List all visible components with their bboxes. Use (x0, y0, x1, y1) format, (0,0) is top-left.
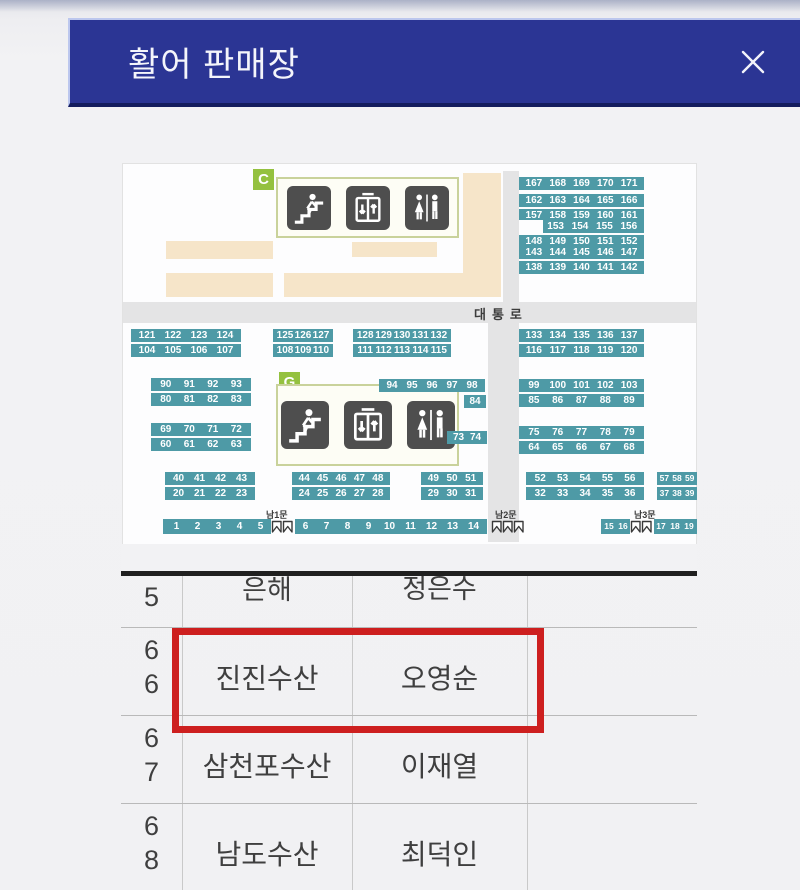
stall-row: 69707172 (151, 423, 251, 436)
stall-number: 12 (421, 522, 442, 532)
stall-number: 115 (430, 346, 448, 356)
stall-number: 107 (212, 346, 238, 356)
stall-number: 157 (522, 211, 546, 221)
stall-number: 57 (658, 474, 671, 483)
stall-number: 51 (461, 474, 480, 484)
stall-number: 85 (522, 396, 546, 406)
stall-number: 126 (294, 331, 312, 341)
stall-number: 62 (201, 440, 225, 450)
stall-no: 5 (121, 584, 182, 611)
elevator-icon (344, 401, 392, 449)
stall-number: 123 (186, 331, 212, 341)
stall-number: 38 (671, 489, 684, 498)
stall-number: 29 (424, 489, 443, 499)
stall-area-bg (463, 173, 501, 297)
stall-number: 116 (522, 346, 546, 356)
stall-number: 40 (168, 474, 189, 484)
stall-number: 84 (467, 397, 483, 407)
stall-number: 128 (356, 331, 374, 341)
stall-block: 495051293031 (421, 472, 483, 500)
stall-number: 61 (178, 440, 202, 450)
stall-number: 65 (546, 443, 570, 453)
stall-number: 121 (134, 331, 160, 341)
stall-number: 109 (294, 346, 312, 356)
stall-number: 81 (178, 395, 202, 405)
stall-row: 4445464748 (292, 472, 390, 485)
stall-row: 60616263 (151, 438, 251, 451)
stall-row: 40414243 (165, 472, 255, 485)
stall-number: 150 (570, 237, 594, 247)
stall-row: 575859 (657, 472, 697, 485)
gate-icon (271, 519, 295, 534)
stall-number: 103 (617, 381, 641, 391)
stall-number: 27 (350, 489, 368, 499)
stall-number: 98 (462, 381, 482, 391)
stall-number: 52 (529, 474, 551, 484)
stall-number: 17 (654, 522, 668, 531)
stall-number: 36 (619, 489, 641, 499)
stall-number: 165 (593, 196, 617, 206)
stall-row: 8586878889 (519, 394, 644, 407)
stall-number: 93 (225, 380, 249, 390)
stall-block: 84 (464, 395, 486, 408)
stall-block: 575859373839 (657, 472, 697, 500)
stall-number: 97 (442, 381, 462, 391)
stall-number: 48 (369, 474, 387, 484)
stall-block: 44454647482425262728 (292, 472, 390, 500)
stall-area-bg (352, 242, 437, 257)
stall-number: 56 (619, 474, 641, 484)
stall-number: 67 (593, 443, 617, 453)
stall-number: 18 (668, 522, 682, 531)
stall-row: 1234567891011121314 (163, 519, 487, 534)
stall-number: 160 (593, 211, 617, 221)
stall-row: 373839 (657, 487, 697, 500)
stall-number: 22 (210, 489, 231, 499)
section-label-c: C (253, 169, 274, 190)
stall-number: 166 (617, 196, 641, 206)
stall-area-bg (166, 241, 273, 259)
stall-number: 66 (570, 443, 594, 453)
stall-row: 99100101102103 (519, 379, 644, 392)
stall-number: 100 (546, 381, 570, 391)
stall-number: 147 (617, 248, 641, 258)
stall-number: 164 (570, 196, 594, 206)
stall-no: 8 (121, 847, 182, 874)
stall-number: 10 (379, 522, 400, 532)
stall-number: 167 (522, 179, 546, 189)
stall-number: 133 (522, 331, 546, 341)
stall-number: 148 (522, 237, 546, 247)
stall-row: 7576777879 (519, 426, 644, 439)
stall-number: 104 (134, 346, 160, 356)
stall-number: 158 (546, 211, 570, 221)
stall-number: 159 (570, 211, 594, 221)
stall-row: 143144145146147 (519, 246, 644, 259)
stall-number: 155 (592, 222, 616, 232)
stall-row: 128129130131132 (353, 329, 451, 342)
stall-number: 53 (551, 474, 573, 484)
stall-number: 120 (617, 346, 641, 356)
close-icon (738, 47, 768, 77)
stall-number: 32 (529, 489, 551, 499)
road-label: 대통로 (474, 304, 528, 323)
live-fish-market-modal: 활어 판매장 대통로 C (0, 0, 800, 890)
stall-number: 8 (337, 522, 358, 532)
stall-number: 47 (350, 474, 368, 484)
stall-row: 138139140141142 (519, 261, 644, 274)
stall-number: 46 (332, 474, 350, 484)
stall-number: 141 (593, 263, 617, 273)
stall-number: 117 (546, 346, 570, 356)
stall-row: 167168169170171 (519, 177, 644, 190)
stall-number: 118 (570, 346, 594, 356)
stall-number: 171 (617, 179, 641, 189)
stall-number: 9 (358, 522, 379, 532)
stall-number: 16 (616, 522, 630, 531)
stall-number: 89 (617, 396, 641, 406)
stall-number: 76 (546, 428, 570, 438)
stall-row: 20212223 (165, 487, 255, 500)
stall-number: 41 (189, 474, 210, 484)
stall-number: 15 (602, 522, 616, 531)
stall-number: 7 (316, 522, 337, 532)
stall-no: 7 (121, 759, 182, 786)
stall-number: 5 (250, 522, 271, 532)
stall-row: 125126127 (273, 329, 333, 342)
road-vertical-upper (503, 171, 519, 302)
stall-number: 149 (546, 237, 570, 247)
stall-number: 20 (168, 489, 189, 499)
stall-number: 11 (400, 522, 421, 532)
stall-number: 101 (570, 381, 594, 391)
stall-number: 24 (295, 489, 313, 499)
stall-number: 35 (596, 489, 618, 499)
stall-number: 45 (313, 474, 331, 484)
stall-number: 143 (522, 248, 546, 258)
stall-number: 151 (593, 237, 617, 247)
stall-row: 108109110 (273, 344, 333, 357)
stall-number: 168 (546, 179, 570, 189)
stall-number: 124 (212, 331, 238, 341)
owner-name: 이재열 (352, 745, 527, 785)
stall-number: 19 (682, 522, 696, 531)
road-horizontal (123, 302, 696, 323)
stall-row: 293031 (421, 487, 483, 500)
stall-row: 121122123124 (131, 329, 241, 342)
stairs-icon (287, 186, 331, 230)
stall-number: 145 (570, 248, 594, 258)
table-crop-cover (121, 544, 697, 571)
stall-number: 14 (463, 522, 484, 532)
elevator-icon (346, 186, 390, 230)
stall-number: 60 (154, 440, 178, 450)
stall-block: 52535455563233343536 (526, 472, 644, 500)
modal-header: 활어 판매장 (68, 18, 800, 107)
stall-number: 68 (617, 443, 641, 453)
stall-block: 6970717260616263 (151, 423, 251, 451)
stall-number: 96 (422, 381, 442, 391)
stall-number: 119 (593, 346, 617, 356)
stall-block: 7374 (447, 431, 487, 444)
stall-block: 75767778796465666768 (519, 426, 644, 454)
stall-number: 136 (593, 331, 617, 341)
stall-number: 114 (411, 346, 429, 356)
stall-block: 1234567891011121314 (163, 519, 487, 534)
stall-number: 162 (522, 196, 546, 206)
table-top-rule (121, 571, 697, 576)
stall-block: 143144145146147138139140141142 (519, 246, 644, 274)
stall-block: 121122123124104105106107 (131, 329, 241, 357)
facility-box-g (276, 384, 459, 466)
stall-number: 49 (424, 474, 443, 484)
stall-number: 25 (313, 489, 331, 499)
stall-number: 83 (225, 395, 249, 405)
stall-number: 92 (201, 380, 225, 390)
stall-number: 64 (522, 443, 546, 453)
stall-number: 108 (276, 346, 294, 356)
close-button[interactable] (736, 45, 770, 79)
stall-number: 70 (178, 425, 202, 435)
stall-no: 6 (121, 813, 182, 840)
stall-block: 9495969798 (379, 379, 485, 392)
stall-number: 44 (295, 474, 313, 484)
stall-number: 73 (450, 433, 467, 443)
gate-label-south1: 남1문 (266, 508, 288, 521)
stall-block: 991001011021038586878889 (519, 379, 644, 407)
stall-number: 135 (570, 331, 594, 341)
stall-number: 43 (231, 474, 252, 484)
stall-number: 21 (189, 489, 210, 499)
stall-block: 9091929380818283 (151, 378, 251, 406)
stall-number: 153 (543, 222, 567, 232)
stall-number: 140 (570, 263, 594, 273)
gate-icon (630, 519, 654, 534)
stall-number: 30 (443, 489, 462, 499)
stall-number: 2 (187, 522, 208, 532)
stall-number: 142 (617, 263, 641, 273)
stall-number: 94 (382, 381, 402, 391)
stall-row: 116117118119120 (519, 344, 644, 357)
stall-number: 154 (568, 222, 592, 232)
stall-number: 106 (186, 346, 212, 356)
stall-number: 82 (201, 395, 225, 405)
floor-map: 대통로 C (122, 163, 697, 545)
stall-row: 3233343536 (526, 487, 644, 500)
stall-number: 105 (160, 346, 186, 356)
stall-number: 87 (570, 396, 594, 406)
stall-row: 7374 (447, 431, 487, 444)
stall-number: 131 (411, 331, 429, 341)
stall-number: 99 (522, 381, 546, 391)
stall-number: 113 (393, 346, 411, 356)
stall-number: 139 (546, 263, 570, 273)
stairs-icon (281, 401, 329, 449)
shop-name: 남도수산 (182, 833, 352, 873)
stall-number: 161 (617, 211, 641, 221)
stall-row: 111112113114115 (353, 344, 451, 357)
stall-row: 104105106107 (131, 344, 241, 357)
stall-block: 128129130131132111112113114115 (353, 329, 451, 357)
stall-number: 59 (683, 474, 696, 483)
stall-row: 5253545556 (526, 472, 644, 485)
gate-south2-icon (491, 520, 526, 534)
stall-number: 1 (166, 522, 187, 532)
gate-label-south3: 남3문 (634, 508, 656, 521)
stall-number: 78 (593, 428, 617, 438)
stall-row: 84 (464, 395, 486, 408)
stall-number: 102 (593, 381, 617, 391)
stall-area-bg (166, 273, 273, 297)
stall-number: 111 (356, 346, 374, 356)
stall-row: 133134135136137 (519, 329, 644, 342)
stall-block: 167168169170171 (519, 177, 644, 190)
stall-number: 4 (229, 522, 250, 532)
empty-stall (519, 220, 543, 233)
stall-number: 132 (430, 331, 448, 341)
stall-number: 86 (546, 396, 570, 406)
stall-number: 75 (522, 428, 546, 438)
stall-area-bg (284, 273, 463, 297)
facility-box-c (276, 177, 459, 238)
stall-row: 9495969798 (379, 379, 485, 392)
top-edge-strip (0, 0, 800, 12)
stall-number: 69 (154, 425, 178, 435)
table-row-separator (121, 803, 697, 804)
stall-number: 58 (671, 474, 684, 483)
stall-number: 6 (295, 522, 316, 532)
stall-number: 33 (551, 489, 573, 499)
stall-number: 88 (593, 396, 617, 406)
stall-number: 42 (210, 474, 231, 484)
stall-number: 110 (312, 346, 330, 356)
stall-block: 125126127108109110 (273, 329, 333, 357)
stall-number: 146 (593, 248, 617, 258)
stall-number: 95 (402, 381, 422, 391)
stall-number: 138 (522, 263, 546, 273)
stall-number: 39 (683, 489, 696, 498)
stall-number: 55 (596, 474, 618, 484)
stall-row: 90919293 (151, 378, 251, 391)
stall-number: 137 (617, 331, 641, 341)
stall-number: 63 (225, 440, 249, 450)
stall-number: 72 (225, 425, 249, 435)
stall-number: 169 (570, 179, 594, 189)
stall-row: 1516171819 (601, 519, 697, 534)
stall-number: 163 (546, 196, 570, 206)
stall-block: 153154155156148149150151152 (519, 220, 644, 248)
stall-number: 152 (617, 237, 641, 247)
stall-row: 6465666768 (519, 441, 644, 454)
stall-number: 79 (617, 428, 641, 438)
stall-number: 156 (617, 222, 641, 232)
shop-name: 삼천포수산 (182, 745, 352, 785)
stall-number: 112 (374, 346, 392, 356)
stall-number: 28 (369, 489, 387, 499)
stall-number: 71 (201, 425, 225, 435)
stall-block: 4041424320212223 (165, 472, 255, 500)
stall-block: 1516171819 (601, 519, 697, 534)
stall-number: 54 (574, 474, 596, 484)
stall-row: 495051 (421, 472, 483, 485)
stall-number: 129 (374, 331, 392, 341)
stall-row: 162163164165166 (519, 194, 644, 207)
owner-name: 최덕인 (352, 833, 527, 873)
stall-number: 125 (276, 331, 294, 341)
page-title: 활어 판매장 (128, 37, 300, 86)
highlight-box (172, 628, 544, 733)
stall-number: 74 (467, 433, 484, 443)
stall-number: 26 (332, 489, 350, 499)
stall-number: 34 (574, 489, 596, 499)
stall-number: 37 (658, 489, 671, 498)
stall-number: 122 (160, 331, 186, 341)
stall-number: 144 (546, 248, 570, 258)
stall-number: 91 (178, 380, 202, 390)
stall-number: 170 (593, 179, 617, 189)
stall-number: 130 (393, 331, 411, 341)
stall-row: 80818283 (151, 393, 251, 406)
stall-block: 133134135136137116117118119120 (519, 329, 644, 357)
stall-number: 23 (231, 489, 252, 499)
stall-number: 134 (546, 331, 570, 341)
stall-row: 2425262728 (292, 487, 390, 500)
stall-row: 153154155156 (519, 220, 644, 233)
stall-number: 3 (208, 522, 229, 532)
stall-number: 50 (443, 474, 462, 484)
stall-number: 127 (312, 331, 330, 341)
stall-block: 162163164165166157158159160161 (519, 194, 644, 222)
stall-number: 31 (461, 489, 480, 499)
stall-number: 80 (154, 395, 178, 405)
stall-number: 13 (442, 522, 463, 532)
stall-number: 90 (154, 380, 178, 390)
restroom-icon (405, 186, 449, 230)
stall-number: 77 (570, 428, 594, 438)
